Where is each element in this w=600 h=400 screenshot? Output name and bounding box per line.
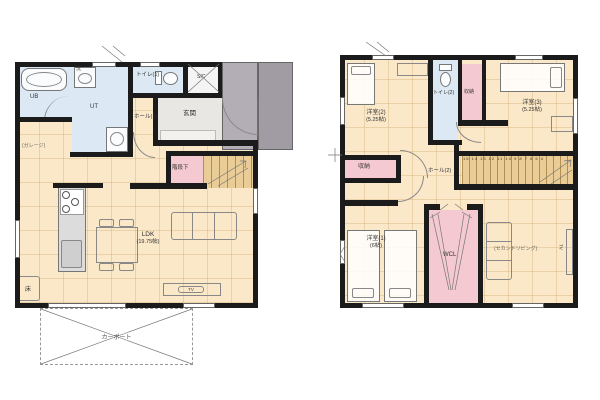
- window: [372, 55, 394, 60]
- sofa-divider: [192, 213, 193, 239]
- wall: [128, 93, 222, 98]
- window: [515, 55, 543, 60]
- washbasin-bowl: [78, 73, 92, 84]
- wall: [454, 184, 578, 190]
- tv-label-1f: TV: [188, 287, 194, 292]
- sofa-divider: [214, 213, 215, 239]
- stove-burner-icon: [62, 205, 70, 213]
- window: [92, 62, 116, 67]
- wall: [458, 120, 508, 126]
- wall: [424, 204, 440, 210]
- stair-numbers-label: 15 14 13 12 11 10 9 8 7 6 5 4: [463, 157, 544, 162]
- laundry-label: 洗: [76, 66, 81, 72]
- stove-burner-icon: [62, 191, 70, 199]
- wall: [340, 178, 401, 183]
- stove-burner-icon: [71, 198, 79, 206]
- wall: [573, 55, 578, 308]
- bedroom2-size: (5.25帖): [352, 117, 400, 124]
- sofa: [171, 212, 237, 240]
- wall: [128, 62, 133, 157]
- under-stairs-label: 階段下: [172, 165, 189, 172]
- window: [340, 97, 345, 125]
- toilet-2f-label: トイレ(2): [433, 90, 454, 96]
- bedroom1-label: 洋室(1) (6帖): [352, 236, 400, 250]
- wall: [253, 146, 258, 308]
- entrance-label: 玄関: [183, 110, 196, 118]
- sofa-divider: [487, 260, 511, 261]
- closet-top-label: 収納: [464, 89, 474, 95]
- toilet-tank-icon: [439, 64, 452, 71]
- chair: [99, 263, 114, 271]
- wall: [166, 151, 253, 156]
- tv-wall-unit: [566, 229, 573, 275]
- pillow: [351, 66, 371, 75]
- window: [362, 303, 404, 308]
- hall-1f-label: ホール(1): [134, 114, 157, 121]
- ldk-size: (19.75帖): [118, 239, 178, 246]
- pillow: [550, 67, 562, 88]
- toilet-bowl-icon: [440, 72, 451, 87]
- wall: [218, 62, 222, 95]
- window: [512, 303, 544, 308]
- stairs-1f: [203, 156, 253, 188]
- carport-area: カーポート: [40, 308, 193, 365]
- chair: [119, 219, 134, 227]
- wall: [482, 60, 486, 126]
- tv-label-2f: TV: [558, 244, 563, 250]
- second-living-label: (セカンドリビング): [494, 246, 537, 252]
- floorplan-canvas: TV 床 カーポート: [0, 0, 600, 400]
- room-closet-left: [345, 160, 396, 178]
- desk: [551, 116, 573, 132]
- wall: [424, 204, 429, 303]
- wall: [454, 145, 459, 189]
- desk: [397, 63, 428, 76]
- kitchen-sink: [61, 240, 82, 268]
- carport-label: カーポート: [101, 332, 131, 341]
- roof-mark-2f: [366, 42, 389, 56]
- pillow: [352, 288, 374, 298]
- wall: [70, 152, 133, 157]
- chair: [119, 263, 134, 271]
- wall: [478, 204, 483, 303]
- wall: [153, 140, 258, 146]
- window: [15, 220, 20, 258]
- floor-storage-label: 床: [25, 284, 31, 293]
- wall: [467, 204, 483, 210]
- bedroom1-size: (6帖): [352, 243, 400, 250]
- window: [140, 62, 160, 67]
- roof-mark-1f: [102, 46, 125, 62]
- window: [573, 98, 578, 134]
- wall: [340, 155, 401, 160]
- closet-left-label: 収納: [358, 164, 370, 171]
- bedroom3-size: (5.25帖): [508, 107, 556, 114]
- wcl-label: WCL: [443, 252, 456, 259]
- ldk-name: LDK: [118, 231, 178, 239]
- toilet-1f-label: トイレ(1): [136, 72, 159, 79]
- wall: [15, 62, 20, 308]
- wall: [53, 183, 103, 188]
- window: [253, 188, 258, 214]
- washing-machine-drum: [110, 132, 124, 146]
- tv-screen: TV: [178, 286, 204, 293]
- ldk-label: LDK (19.75帖): [118, 231, 178, 245]
- bedroom2-label: 洋室(2) (5.25帖): [352, 110, 400, 124]
- sofa-divider: [487, 241, 511, 242]
- wall: [428, 55, 433, 145]
- window: [340, 240, 345, 264]
- pillow: [389, 288, 411, 298]
- ub-label: UB: [30, 94, 38, 101]
- sic-label: SIC: [197, 74, 205, 80]
- chair: [99, 219, 114, 227]
- toilet-bowl-icon: [163, 72, 178, 85]
- bathtub-basin: [26, 72, 62, 87]
- wall: [15, 62, 222, 67]
- hall-2f-label: ホール(2): [428, 168, 451, 175]
- wall: [183, 62, 188, 95]
- wall: [396, 155, 401, 183]
- porch-outer: [258, 62, 293, 150]
- wall: [458, 60, 462, 124]
- garage-note-label: (ガレージ): [22, 143, 45, 149]
- utility-label: UT: [90, 104, 98, 111]
- bedroom3-label: 洋室(3) (5.25帖): [508, 100, 556, 114]
- wall: [130, 183, 207, 189]
- wall: [15, 117, 72, 122]
- wall: [340, 200, 398, 206]
